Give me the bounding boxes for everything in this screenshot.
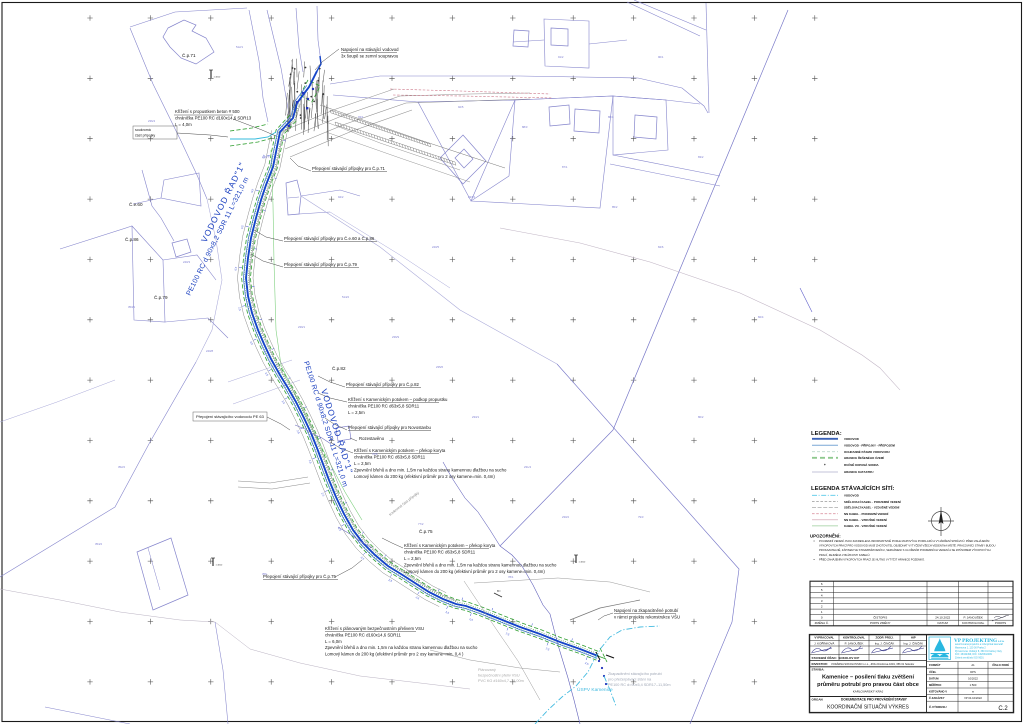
- svg-text:76/8: 76/8: [372, 452, 378, 456]
- svg-text:352/2: 352/2: [118, 465, 125, 469]
- svg-text:LEGENDA STÁVAJÍCÍCH SÍTÍ:: LEGENDA STÁVAJÍCÍCH SÍTÍ:: [811, 484, 894, 492]
- svg-text:83/2: 83/2: [698, 155, 704, 159]
- svg-text:93/1: 93/1: [358, 115, 364, 119]
- svg-text:bezpečnostní přeliv VSU: bezpečnostní přeliv VSU: [478, 674, 520, 678]
- svg-text:L = 4,0m: L = 4,0m: [175, 122, 192, 127]
- svg-text:236/9: 236/9: [392, 335, 399, 339]
- svg-text:chránička PE100 RC d160x14,6 S: chránička PE100 RC d160x14,6 SDR11: [325, 632, 401, 637]
- svg-text:s.r.o.: s.r.o.: [998, 639, 1005, 643]
- svg-text:DATUM: DATUM: [929, 676, 939, 680]
- svg-text:SDĚLOVACÍ KABEL - PODZEMNÍ VED: SDĚLOVACÍ KABEL - PODZEMNÍ VEDENÍ: [844, 499, 901, 504]
- svg-text:J. KOŘÍNKOVÁ: J. KOŘÍNKOVÁ: [814, 641, 834, 646]
- svg-text:354/2: 354/2: [95, 542, 102, 546]
- svg-text:92/5: 92/5: [458, 105, 464, 109]
- svg-text:VODÁRNA SOKOLOVSKO s.r.o., Jiř: VODÁRNA SOKOLOVSKO s.r.o., Jiřího Dimitr…: [831, 662, 915, 666]
- svg-text:INVESTOR:: INVESTOR:: [812, 662, 828, 666]
- svg-text:24.10.2022: 24.10.2022: [935, 616, 950, 620]
- svg-text:Přepojení stávající přípojky p: Přepojení stávající přípojky pro Č.e.60 …: [284, 236, 375, 241]
- svg-text:Křížení s propustkem beton # 5: Křížení s propustkem beton # 500: [175, 109, 240, 114]
- svg-text:Č.p.75: Č.p.75: [419, 528, 433, 534]
- svg-text:POPIS ZMĚNY: POPIS ZMĚNY: [870, 620, 891, 625]
- svg-text:Přepojení stávající přípojky p: Přepojení stávající přípojky pro Novosta…: [348, 425, 431, 430]
- svg-text:1 4000: 1 4000: [216, 565, 223, 567]
- svg-text:STAVBA:: STAVBA:: [812, 668, 825, 672]
- svg-text:L = 2,5m: L = 2,5m: [404, 556, 421, 561]
- svg-text:v rámci projektu rekonstrukce: v rámci projektu rekonstrukce VŠU: [614, 614, 680, 619]
- svg-text:3x šoupě se zemní soupravou: 3x šoupě se zemní soupravou: [341, 53, 399, 58]
- svg-text:PVC KG #160x4,7–74,00m: PVC KG #160x4,7–74,00m: [478, 679, 524, 683]
- svg-text:ČÍSLO PARÉ: ČÍSLO PARÉ: [992, 662, 1009, 667]
- svg-text:1:500: 1:500: [970, 683, 977, 687]
- svg-text:L = 2,5m: L = 2,5m: [354, 461, 371, 466]
- svg-text:Ing. J. ČINČÁK: Ing. J. ČINČÁK: [875, 641, 895, 646]
- svg-text:236/7: 236/7: [262, 155, 269, 159]
- svg-text:Napojení na zkapacitněné potru: Napojení na zkapacitněné potrubí: [614, 608, 679, 613]
- svg-text:78/1: 78/1: [508, 575, 514, 579]
- svg-text:VYPRACOVAL: VYPRACOVAL: [814, 636, 834, 640]
- svg-text:356: 356: [262, 572, 267, 576]
- svg-text:L = 2,5m: L = 2,5m: [348, 410, 365, 415]
- svg-text:Č.p.82: Č.p.82: [332, 365, 346, 371]
- svg-text:průměru potrubí pro pravou čás: průměru potrubí pro pravou část obce: [817, 681, 919, 688]
- svg-text:Křížení s Kamenickým potokem –: Křížení s Kamenickým potokem – podkop pr…: [348, 397, 448, 402]
- svg-text:1 4000: 1 4000: [214, 77, 221, 79]
- svg-text:Přepojení stávajícího vodovodu: Přepojení stávajícího vodovodu PE 63: [196, 414, 265, 419]
- svg-text:79/3: 79/3: [638, 515, 644, 519]
- svg-text:Lomový kámen do 200 kg (efekti: Lomový kámen do 200 kg (efektivní průměr…: [404, 569, 545, 574]
- svg-text:část přípojky: část přípojky: [135, 134, 155, 138]
- svg-text:10/2022: 10/2022: [968, 676, 978, 680]
- svg-text:Zpevnění břehů a dno min. 1,5m: Zpevnění břehů a dno min. 1,5m na každou…: [325, 645, 478, 650]
- svg-text:237/2: 237/2: [468, 195, 475, 199]
- svg-text:HIP: HIP: [911, 636, 916, 640]
- svg-text:Lomový kámen do 200 kg (efekti: Lomový kámen do 200 kg (efektivní průměr…: [354, 474, 495, 479]
- svg-text:Lomový kámen do 200 kg (efekti: Lomový kámen do 200 kg (efektivní průměr…: [325, 652, 464, 657]
- svg-text:DOKUMENTACE PRO PROVÁDĚNÍ STAV: DOKUMENTACE PRO PROVÁDĚNÍ STAVBY: [841, 697, 908, 702]
- svg-text:80/2: 80/2: [698, 415, 704, 419]
- svg-text:ÚSPV Kamenice: ÚSPV Kamenice: [577, 686, 613, 693]
- svg-text:88/3: 88/3: [522, 125, 528, 129]
- svg-text:chránička PE100 RC d63x5,8 SDR: chránička PE100 RC d63x5,8 SDR11: [404, 549, 476, 554]
- svg-text:NN KABEL - PODZEMNÍ VEDENÍ: NN KABEL - PODZEMNÍ VEDENÍ: [844, 511, 888, 516]
- svg-text:Křížení s Kamenickým potokem –: Křížení s Kamenickým potokem – překop ko…: [404, 543, 496, 548]
- svg-text:84/6: 84/6: [658, 245, 664, 249]
- svg-text:SDĚLOVACÍ KABEL - VZDUŠNÉ VEDE: SDĚLOVACÍ KABEL - VZDUŠNÉ VEDENÍ: [844, 505, 899, 510]
- svg-text:230/2: 230/2: [562, 515, 569, 519]
- svg-text:C.2: C.2: [998, 706, 1008, 712]
- svg-text:Napojení na stávající vodovod: Napojení na stávající vodovod: [341, 47, 399, 52]
- svg-text:240/8: 240/8: [206, 349, 213, 353]
- svg-text:239/1: 239/1: [298, 325, 305, 329]
- svg-text:ORGAN: ORGAN: [812, 698, 823, 702]
- svg-text:77/2: 77/2: [418, 522, 424, 526]
- svg-text:DPS: DPS: [970, 670, 976, 674]
- svg-text:DATUM: DATUM: [937, 621, 948, 625]
- svg-text:chránička PE100 RC d63x5,8 SDR: chránička PE100 RC d63x5,8 SDR11: [354, 454, 426, 459]
- svg-text:90/1: 90/1: [658, 55, 664, 59]
- svg-text:RUČNĚ KOPANÁ SONDA: RUČNĚ KOPANÁ SONDA: [844, 462, 880, 467]
- svg-text:Rozestavěno: Rozestavěno: [359, 436, 385, 441]
- svg-text:Č.VÝKRESU: Č.VÝKRESU: [929, 704, 947, 709]
- svg-text:KONTROLOVAL: KONTROLOVAL: [843, 636, 865, 640]
- svg-text:Č.p.71: Č.p.71: [182, 52, 196, 58]
- svg-text:Plánovaný: Plánovaný: [478, 668, 496, 672]
- svg-text:KOORDINAČNÍ SITUAČNÍ VÝKRES: KOORDINAČNÍ SITUAČNÍ VÝKRES: [827, 704, 909, 711]
- svg-text:KABEL VO - VZDUŠNÉ VEDENÍ: KABEL VO - VZDUŠNÉ VEDENÍ: [844, 523, 887, 528]
- svg-text:236/4: 236/4: [148, 119, 155, 123]
- svg-text:Č.p.79: Č.p.79: [154, 294, 168, 300]
- svg-text:Křížení s plánovaným bezpečnos: Křížení s plánovaným bezpečnostním přeli…: [325, 626, 424, 631]
- svg-text:P. JANOUŠEK: P. JANOUŠEK: [845, 641, 864, 646]
- svg-text:VODOVOD: VODOVOD: [844, 437, 859, 441]
- svg-text:PE100 RC d=90x5,4 SDR17–11,50m: PE100 RC d=90x5,4 SDR17–11,50m: [608, 683, 671, 687]
- svg-text:Zelená venkčíslo ISO 9001: Zelená venkčíslo ISO 9001: [955, 656, 984, 659]
- svg-text:240/3: 240/3: [183, 260, 190, 264]
- svg-text:P. JANOUŠEK: P. JANOUŠEK: [963, 615, 982, 620]
- svg-text:Zkapacitnění stávajícího potru: Zkapacitnění stávajícího potrubí: [608, 672, 663, 676]
- svg-text:233/1: 233/1: [472, 415, 479, 419]
- svg-text:pro přečerpávací stání na: pro přečerpávací stání na: [608, 678, 652, 682]
- svg-text:•: •: [814, 557, 815, 561]
- svg-text:231/4: 231/4: [524, 465, 531, 469]
- svg-text:91/2: 91/2: [558, 55, 564, 59]
- svg-text:chránička PE100 RC d63x5,8 SDR: chránička PE100 RC d63x5,8 SDR11: [348, 403, 420, 408]
- svg-text:VODOVOD: VODOVOD: [844, 494, 859, 498]
- svg-text:Č.p.86: Č.p.86: [125, 236, 139, 242]
- svg-text:HRANICE KATASTRU: HRANICE KATASTRU: [844, 470, 873, 474]
- svg-text:Ing. J. ČINČÁK: Ing. J. ČINČÁK: [903, 641, 923, 646]
- svg-text:82/4: 82/4: [758, 315, 764, 319]
- svg-text:94/2: 94/2: [338, 195, 344, 199]
- svg-text:UPOZORNĚNÍ:: UPOZORNĚNÍ:: [810, 534, 841, 539]
- svg-text:L = 6,0m: L = 6,0m: [325, 639, 342, 644]
- svg-text:chránička PE100 RC d160x14,6 S: chránička PE100 RC d160x14,6 SDR13: [175, 115, 252, 120]
- svg-text:Křížení s Kamenickým potokem –: Křížení s Kamenickým potokem – překop ko…: [354, 448, 446, 453]
- svg-text:KONTROLOVAL: KONTROLOVAL: [962, 621, 985, 625]
- svg-text:HRANICE ŘEŠENÉHO ÚZEMÍ: HRANICE ŘEŠENÉHO ÚZEMÍ: [844, 455, 884, 460]
- svg-text:soukromá: soukromá: [135, 128, 151, 132]
- svg-text:ČISTOPIS: ČISTOPIS: [873, 615, 887, 620]
- svg-text:ZMĚNA Č.: ZMĚNA Č.: [815, 620, 829, 625]
- svg-text:NN KABEL - VZDUŠNÉ VEDENÍ: NN KABEL - VZDUŠNÉ VEDENÍ: [844, 517, 887, 522]
- svg-text:Přepojení stávající přípojky p: Přepojení stávající přípojky pro Č.p.75: [263, 574, 336, 579]
- svg-text:240/5: 240/5: [432, 245, 439, 249]
- svg-text:512/1: 512/1: [236, 45, 243, 49]
- svg-text:1 4000: 1 4000: [579, 562, 586, 564]
- svg-text:OCHRANNÉ PÁSMO VODOVODU: OCHRANNÉ PÁSMO VODOVODU: [844, 449, 890, 454]
- svg-text:A1: A1: [971, 663, 975, 667]
- svg-text:85/2: 85/2: [612, 205, 618, 209]
- svg-text:VP 04.10/2022: VP 04.10/2022: [964, 696, 982, 700]
- svg-text:Přepojení stávající přípojky p: Přepojení stávající přípojky pro Č.p.79: [284, 262, 357, 267]
- svg-text:STAVEBNÍ ÚŘAD: SOKOLOV ICP: STAVEBNÍ ÚŘAD: SOKOLOV ICP: [812, 655, 860, 660]
- svg-text:KARLOVARSKÝ KRAJ: KARLOVARSKÝ KRAJ: [853, 689, 884, 693]
- svg-text:Kamenice – posílení tlaku zvět: Kamenice – posílení tlaku zvětšení: [822, 674, 914, 680]
- svg-text:Č.e.60: Č.e.60: [129, 201, 143, 207]
- svg-text:353/1: 353/1: [128, 305, 135, 309]
- svg-text:Přepojení stávající přípojky p: Přepojení stávající přípojky pro Č.p.82: [346, 382, 419, 387]
- svg-text:Zpevnění břehů a dno min. 1,5m: Zpevnění břehů a dno min. 1,5m na každou…: [404, 563, 557, 568]
- svg-text:•: •: [814, 539, 815, 543]
- svg-text:Přepojení stávající přípojky p: Přepojení stávající přípojky pro Č.p.71: [312, 166, 385, 171]
- svg-text:VODOVOD - PŘÍPOJKY - PŘEPOJENÍ: VODOVOD - PŘÍPOJKY - PŘEPOJENÍ: [844, 443, 895, 448]
- svg-text:Zpevnění břehů a dno min. 1,5m: Zpevnění břehů a dno min. 1,5m na každou…: [354, 468, 507, 473]
- svg-text:ZODP. PROJ.: ZODP. PROJ.: [876, 636, 894, 640]
- svg-text:PODPIS: PODPIS: [995, 621, 1006, 625]
- svg-text:LEGENDA:: LEGENDA:: [811, 431, 842, 437]
- svg-text:235/6: 235/6: [436, 365, 443, 369]
- svg-text:B=: B=: [497, 589, 501, 593]
- svg-text:87/1: 87/1: [562, 165, 568, 169]
- svg-text:514/2: 514/2: [342, 295, 349, 299]
- svg-text:86/4: 86/4: [608, 115, 614, 119]
